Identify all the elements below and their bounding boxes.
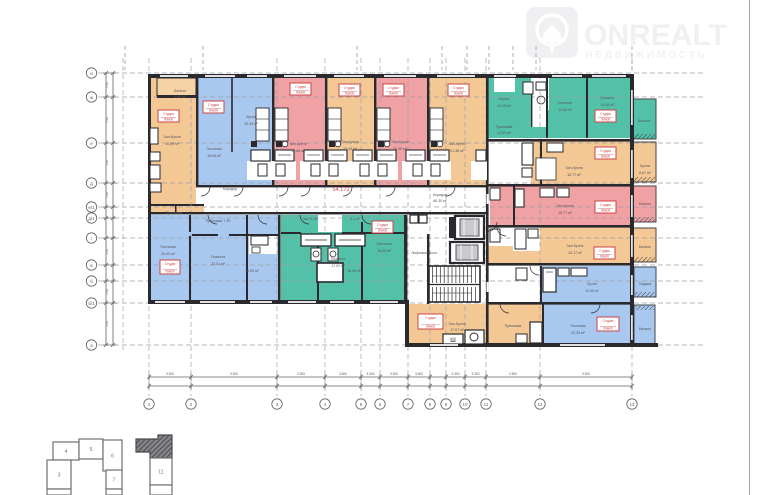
svg-text:Студия: Студия — [600, 203, 611, 207]
svg-text:6: 6 — [111, 454, 114, 460]
svg-text:10: 10 — [462, 402, 468, 407]
svg-text:13.05 м²: 13.05 м² — [558, 108, 572, 112]
svg-text:Спальня: Спальня — [558, 101, 572, 105]
svg-text:16.86 м²: 16.86 м² — [291, 149, 305, 153]
svg-text:Студия: Студия — [344, 86, 355, 90]
svg-text:3.300: 3.300 — [367, 372, 375, 376]
svg-text:3.30: 3.30 — [105, 117, 109, 123]
svg-text:Студия: Студия — [453, 86, 464, 90]
svg-text:3.300: 3.300 — [339, 372, 347, 376]
svg-text:Кухня: Кухня — [640, 164, 650, 168]
svg-text:Гостиная: Гостиная — [570, 324, 585, 328]
svg-text:00м00: 00м00 — [603, 327, 613, 331]
svg-text:54.172: 54.172 — [333, 187, 350, 193]
svg-text:Лоджия: Лоджия — [639, 282, 652, 286]
svg-text:00м00: 00м00 — [209, 109, 219, 113]
svg-text:17.02 м²: 17.02 м² — [331, 264, 345, 268]
svg-text:3.300: 3.300 — [452, 372, 460, 376]
svg-text:Кухня: Кухня — [499, 97, 509, 101]
svg-text:Спальня: Спальня — [600, 96, 614, 100]
svg-text:Балкон: Балкон — [639, 202, 651, 206]
svg-text:23.35 м²: 23.35 м² — [571, 331, 585, 335]
svg-text:00м00: 00м00 — [454, 92, 464, 96]
svg-text:12: 12 — [537, 402, 543, 407]
svg-text:3.300: 3.300 — [415, 372, 423, 376]
svg-text:Студия: Студия — [377, 223, 388, 227]
svg-text:12.05 м²: 12.05 м² — [585, 289, 599, 293]
svg-text:00м00: 00м00 — [601, 118, 611, 122]
svg-text:1.90: 1.90 — [105, 192, 109, 198]
svg-text:16.05 м²: 16.05 м² — [245, 269, 259, 273]
svg-text:Прихожая: Прихожая — [505, 324, 522, 328]
svg-text:Балкон: Балкон — [639, 327, 651, 331]
svg-text:Гостиная: Гостиная — [160, 245, 175, 249]
svg-text:е/1: е/1 — [88, 205, 95, 210]
svg-text:Студия: Студия — [600, 149, 611, 153]
svg-text:3.300: 3.300 — [390, 372, 398, 376]
svg-text:д/1: д/1 — [88, 216, 95, 221]
svg-text:Прихожая: Прихожая — [496, 125, 513, 129]
svg-text:11: 11 — [484, 402, 489, 407]
svg-text:Спальня: Спальня — [331, 257, 345, 261]
svg-text:Зал-Кухня: Зал-Кухня — [556, 204, 573, 208]
svg-text:Студия: Студия — [599, 249, 610, 253]
svg-text:Прихожая: Прихожая — [166, 211, 183, 215]
svg-text:00м00: 00м00 — [345, 92, 355, 96]
svg-text:11: 11 — [158, 470, 163, 476]
svg-text:66.30 м²: 66.30 м² — [433, 199, 447, 203]
svg-text:Кухня: Кухня — [246, 115, 256, 119]
svg-text:Ш: Ш — [450, 338, 456, 344]
svg-text:Студия: Студия — [163, 112, 174, 116]
svg-text:3.300: 3.300 — [166, 372, 174, 376]
svg-text:3.300: 3.300 — [297, 372, 305, 376]
svg-text:Студия: Студия — [165, 262, 176, 266]
svg-text:Спальня: Спальня — [211, 255, 225, 259]
svg-text:Студия: Студия — [600, 112, 611, 116]
svg-text:16.05 м²: 16.05 м² — [207, 154, 221, 158]
svg-text:14.17 м²: 14.17 м² — [568, 251, 582, 255]
svg-text:3.300: 3.300 — [230, 372, 238, 376]
svg-text:ж: ж — [90, 95, 93, 100]
svg-text:Кухня: Кухня — [587, 282, 597, 286]
svg-text:Балкон: Балкон — [174, 89, 186, 93]
svg-text:10.89 м²: 10.89 м² — [165, 142, 179, 146]
svg-text:00м00: 00м00 — [601, 155, 611, 159]
svg-text:3.30: 3.30 — [105, 160, 109, 166]
svg-text:13: 13 — [629, 402, 635, 407]
svg-text:15.05 м²: 15.05 м² — [377, 249, 391, 253]
svg-text:14.08 м²: 14.08 м² — [600, 103, 614, 107]
svg-text:3.30: 3.30 — [105, 249, 109, 255]
svg-text:Зал-Кухня: Зал-Кухня — [448, 322, 465, 326]
svg-text:Студия: Студия — [208, 103, 219, 107]
svg-text:00м00: 00м00 — [600, 255, 610, 259]
svg-text:3.300: 3.300 — [472, 372, 480, 376]
svg-text:16.05 м²: 16.05 м² — [347, 269, 361, 273]
svg-text:Студия: Студия — [295, 85, 306, 89]
svg-text:6.1 м²: 6.1 м² — [350, 217, 360, 221]
svg-text:Зал-Кухня: Зал-Кухня — [289, 142, 306, 146]
svg-text:00м00: 00м00 — [378, 229, 388, 233]
svg-text:00м00: 00м00 — [426, 325, 436, 329]
svg-text:3.300: 3.300 — [509, 372, 517, 376]
svg-text:Студия: Студия — [425, 316, 436, 320]
svg-text:3.300: 3.300 — [582, 372, 590, 376]
svg-text:6.67 м²: 6.67 м² — [639, 171, 651, 175]
svg-text:Балкон: Балкон — [638, 119, 650, 123]
svg-text:13.53 м²: 13.53 м² — [497, 131, 511, 135]
svg-text:Коридор: Коридор — [223, 187, 237, 191]
svg-text:Гостиная: Гостиная — [376, 242, 391, 246]
svg-text:Зал-Кухня: Зал-Кухня — [391, 140, 408, 144]
svg-text:1.60: 1.60 — [105, 289, 109, 295]
svg-text:4.85 м²: 4.85 м² — [174, 95, 186, 99]
svg-text:4: 4 — [65, 449, 68, 455]
svg-text:Зал-Кухня: Зал-Кухня — [448, 142, 465, 146]
svg-text:00м00: 00м00 — [164, 118, 174, 122]
svg-text:Коридор: Коридор — [433, 193, 447, 197]
svg-text:Зал-Кухня: Зал-Кухня — [565, 166, 582, 170]
svg-text:Студия: Студия — [603, 319, 614, 323]
svg-text:Зал-Кухня: Зал-Кухня — [163, 135, 180, 139]
svg-text:16.77 м²: 16.77 м² — [567, 173, 581, 177]
svg-text:00м00: 00м00 — [296, 91, 306, 95]
svg-text:д: д — [90, 181, 93, 186]
svg-text:16.77 м²: 16.77 м² — [558, 211, 572, 215]
svg-text:10.34 м²: 10.34 м² — [244, 122, 258, 126]
svg-text:14.05 м²: 14.05 м² — [497, 104, 511, 108]
svg-text:б/1: б/1 — [88, 301, 95, 306]
svg-text:3.30: 3.30 — [105, 321, 109, 327]
svg-text:зал 5.49: зал 5.49 — [303, 217, 317, 221]
svg-text:20.55 м²: 20.55 м² — [343, 147, 357, 151]
svg-text:00м00: 00м00 — [389, 92, 399, 96]
svg-text:Зал Кухня: Зал Кухня — [567, 244, 584, 248]
svg-text:1.90: 1.90 — [105, 82, 109, 88]
svg-text:Гостиная: Гостиная — [206, 147, 221, 151]
svg-text:НЕДВИЖИМОСТЬ: НЕДВИЖИМОСТЬ — [585, 49, 707, 61]
svg-text:22.01 м²: 22.01 м² — [211, 262, 225, 266]
svg-text:3: 3 — [58, 473, 61, 479]
svg-text:ONREALT: ONREALT — [584, 19, 727, 52]
svg-text:7: 7 — [113, 478, 116, 484]
svg-text:00м00: 00м00 — [165, 270, 175, 274]
svg-text:Зал-Кухня: Зал-Кухня — [341, 140, 358, 144]
svg-text:5: 5 — [90, 447, 93, 453]
svg-text:Лифтовой холл: Лифтовой холл — [411, 251, 437, 255]
svg-text:20.55 м²: 20.55 м² — [393, 147, 407, 151]
svg-text:17.07 м²: 17.07 м² — [450, 328, 464, 332]
svg-text:00м00: 00м00 — [601, 209, 611, 213]
svg-text:Балкон: Балкон — [639, 245, 651, 249]
svg-text:Студия: Студия — [388, 86, 399, 90]
svg-text:б: б — [90, 279, 93, 284]
svg-text:20.40 м²: 20.40 м² — [161, 252, 175, 256]
svg-text:21.46 м²: 21.46 м² — [450, 149, 464, 153]
